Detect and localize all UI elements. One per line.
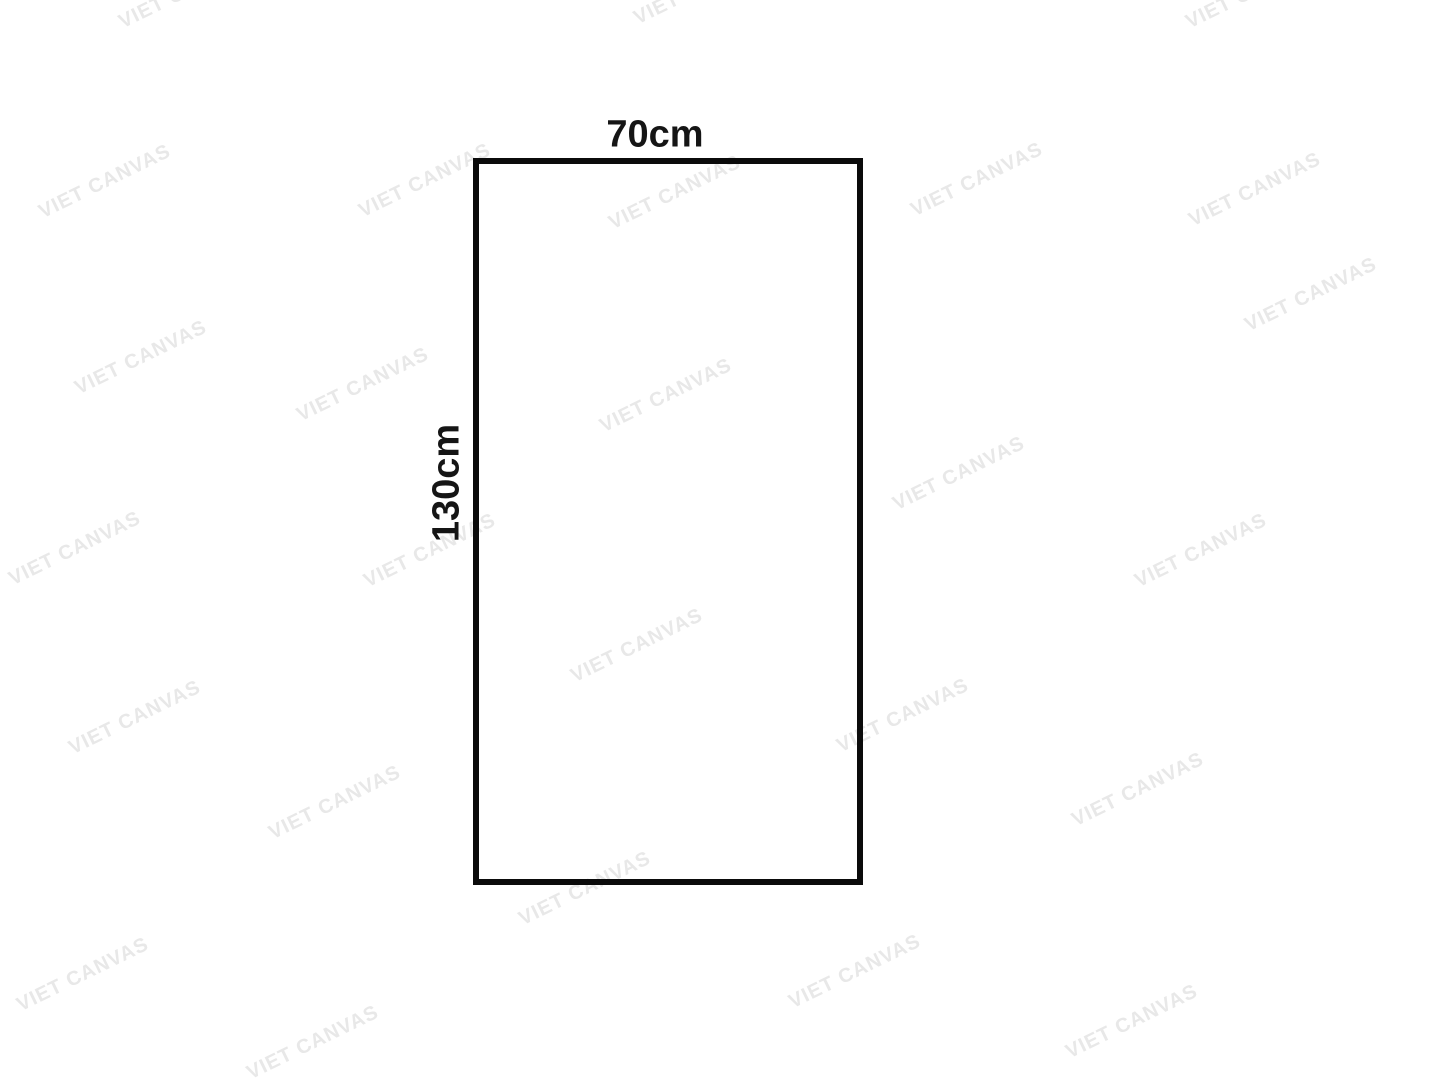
width-dimension-label: 70cm [606,114,703,157]
watermark-text: VIET CANVAS [1182,0,1321,34]
watermark-text: VIET CANVAS [71,316,210,400]
watermark-text: VIET CANVAS [115,0,254,34]
watermark-text: VIET CANVAS [889,432,1028,516]
watermark-text: VIET CANVAS [35,140,174,224]
watermark-text: VIET CANVAS [1068,748,1207,832]
watermark-text: VIET CANVAS [907,138,1046,222]
height-dimension-label: 130cm [426,424,469,542]
watermark-text: VIET CANVAS [1241,253,1380,337]
watermark-text: VIET CANVAS [13,933,152,1017]
watermark-text: VIET CANVAS [630,0,769,30]
watermark-text: VIET CANVAS [243,1001,382,1085]
watermark-text: VIET CANVAS [1131,509,1270,593]
watermark-text: VIET CANVAS [5,507,144,591]
watermark-text: VIET CANVAS [785,930,924,1014]
dimension-diagram: VIET CANVASVIET CANVASVIET CANVASVIET CA… [0,0,1445,1084]
watermark-text: VIET CANVAS [265,761,404,845]
watermark-text: VIET CANVAS [1062,980,1201,1064]
watermark-text: VIET CANVAS [1185,148,1324,232]
watermark-text: VIET CANVAS [65,676,204,760]
watermark-text: VIET CANVAS [293,343,432,427]
canvas-outline-rectangle [473,158,863,885]
